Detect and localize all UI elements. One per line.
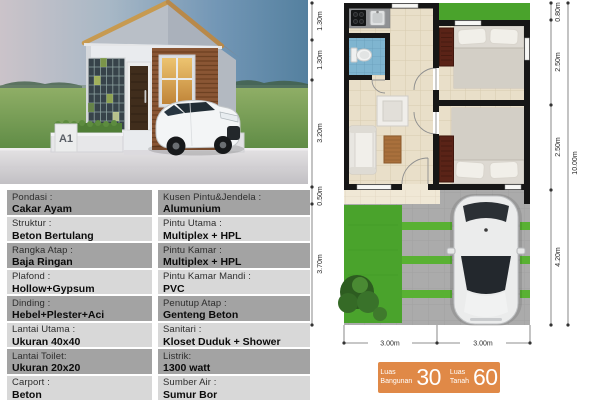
dim-label: 3.20m: [317, 123, 324, 143]
spec-column-right: Kusen Pintu&Jendela : Alumunium Pintu Ut…: [158, 190, 310, 400]
dim-label: 0.80m: [555, 2, 562, 22]
land-area: Luas Tanah 60: [450, 366, 498, 389]
unit-sign: A1: [55, 124, 77, 152]
pillow: [490, 161, 519, 178]
spec-value: Beton Bertulang: [12, 230, 152, 241]
spec-label: Pondasi :: [12, 193, 152, 204]
backyard-grass: [433, 3, 530, 20]
car-top-view: [447, 194, 525, 326]
spec-value: Baja Ringan: [12, 256, 152, 267]
spec-value: 1300 watt: [163, 362, 310, 373]
spec-label: Struktur :: [12, 219, 152, 230]
bathroom: [349, 38, 385, 75]
badge-label-line: Tanah: [450, 378, 469, 386]
badge-label-line: Bangunan: [380, 378, 412, 386]
spec-value: Hollow+Gypsum: [12, 283, 152, 294]
spec-row-lantai-utama: Lantai Utama : Ukuran 40x40: [7, 323, 152, 348]
kitchen: [349, 8, 390, 28]
spec-label: Lantai Toilet:: [12, 352, 152, 363]
pillow: [490, 28, 519, 44]
spec-label: Sumber Air :: [163, 378, 310, 389]
spec-row-listrik: Listrik: 1300 watt: [158, 349, 310, 374]
dim-label: 1.30m: [317, 50, 324, 70]
spec-row-sanitari: Sanitari : Kloset Duduk + Shower: [158, 323, 310, 348]
spec-column-left: Pondasi : Cakar Ayam Struktur : Beton Be…: [7, 190, 152, 400]
spec-value: Multiplex + HPL: [163, 230, 310, 241]
dim-label: 2.50m: [555, 137, 562, 157]
spec-row-kusen: Kusen Pintu&Jendela : Alumunium: [158, 190, 310, 215]
spec-value: Sumur Bor: [163, 389, 310, 400]
car-mirror: [517, 248, 525, 254]
spec-row-pondasi: Pondasi : Cakar Ayam: [7, 190, 152, 215]
dimensions-bottom: 3.00m 3.00m: [342, 325, 531, 348]
dim-label: 3.70m: [317, 254, 324, 274]
car-mirror: [447, 248, 455, 254]
stove: [351, 10, 366, 26]
building-area-label: Luas Bangunan: [380, 369, 412, 386]
spec-value: Ukuran 20x20: [12, 362, 152, 373]
dimension-total: 10.00m: [566, 1, 579, 326]
spec-table: Pondasi : Cakar Ayam Struktur : Beton Be…: [7, 190, 310, 400]
lit-window: [159, 55, 195, 107]
land-area-value: 60: [473, 366, 498, 389]
bedroom-2: [440, 108, 525, 184]
badge-label-line: Luas: [380, 369, 412, 377]
dimensions-left: 1.30m 1.30m 3.20m 0.50m 3.70m: [310, 1, 324, 326]
spec-label: Dinding :: [12, 299, 152, 310]
spec-row-sumber-air: Sumber Air : Sumur Bor: [158, 376, 310, 400]
pillow: [455, 161, 484, 179]
spec-row-plafond: Plafond : Hollow+Gypsum: [7, 270, 152, 295]
spec-value: Cakar Ayam: [12, 203, 152, 214]
dim-label: 3.00m: [380, 341, 400, 348]
land-area-label: Luas Tanah: [450, 369, 469, 386]
spec-value: Kloset Duduk + Shower: [163, 336, 310, 347]
building-area: Luas Bangunan 30: [380, 366, 441, 389]
pillow: [458, 28, 487, 45]
dim-label: 3.00m: [473, 341, 493, 348]
front-door: [127, 62, 151, 130]
dim-label-total: 10.00m: [572, 151, 579, 175]
spec-label: Carport :: [12, 378, 152, 389]
spec-label: Kusen Pintu&Jendela :: [163, 193, 310, 204]
spec-value: Genteng Beton: [163, 309, 310, 320]
building-area-value: 30: [416, 366, 441, 389]
spec-label: Lantai Utama :: [12, 325, 152, 336]
spec-row-pintu-kamar: Pintu Kamar : Multiplex + HPL: [158, 243, 310, 268]
spec-label: Rangka Atap :: [12, 246, 152, 257]
spec-label: Pintu Utama :: [163, 219, 310, 230]
car-grille: [227, 126, 240, 140]
badge-label-line: Luas: [450, 369, 469, 377]
door-handle: [145, 90, 147, 103]
spec-row-pintu-kamar-mandi: Pintu Kamar Mandi : PVC: [158, 270, 310, 295]
spec-label: Listrik:: [163, 352, 310, 363]
spec-value: Multiplex + HPL: [163, 256, 310, 267]
porch: [344, 188, 440, 204]
spec-value: Beton: [12, 389, 152, 400]
spec-row-pintu-utama: Pintu Utama : Multiplex + HPL: [158, 217, 310, 242]
spec-label: Pintu Kamar :: [163, 246, 310, 257]
floor-plan: 1.30m 1.30m 3.20m 0.50m 3.70m 0.80m 2.50…: [300, 0, 600, 400]
dim-label: 4.20m: [555, 247, 562, 267]
glass-block-window: [88, 58, 125, 130]
spec-row-penutup-atap: Penutup Atap : Genteng Beton: [158, 296, 310, 321]
spec-value: Alumunium: [163, 203, 310, 214]
spec-label: Plafond :: [12, 272, 152, 283]
spec-row-lantai-toilet: Lantai Toilet: Ukuran 20x20: [7, 349, 152, 374]
spec-value: PVC: [163, 283, 310, 294]
dim-label: 1.30m: [317, 11, 324, 31]
house-illustration: A1: [0, 0, 308, 184]
spec-row-carport: Carport : Beton: [7, 376, 152, 400]
dimensions-right: 0.80m 2.50m 2.50m 4.20m: [549, 1, 562, 326]
spec-label: Penutup Atap :: [163, 299, 310, 310]
house-photo: A1: [0, 0, 308, 184]
wardrobe: [440, 136, 454, 182]
spec-value: Hebel+Plester+Aci: [12, 309, 152, 320]
area-badge: Luas Bangunan 30 Luas Tanah 60: [378, 362, 500, 393]
car-windshield-top: [461, 256, 511, 294]
spec-value: Ukuran 40x40: [12, 336, 152, 347]
spec-label: Sanitari :: [163, 325, 310, 336]
unit-sign-label: A1: [59, 133, 73, 145]
spec-label: Pintu Kamar Mandi :: [163, 272, 310, 283]
spec-row-dinding: Dinding : Hebel+Plester+Aci: [7, 296, 152, 321]
spec-row-struktur: Struktur : Beton Bertulang: [7, 217, 152, 242]
spec-row-rangka-atap: Rangka Atap : Baja Ringan: [7, 243, 152, 268]
dim-label: 0.50m: [317, 186, 324, 206]
bush: [373, 307, 387, 321]
dim-label: 2.50m: [555, 52, 562, 72]
